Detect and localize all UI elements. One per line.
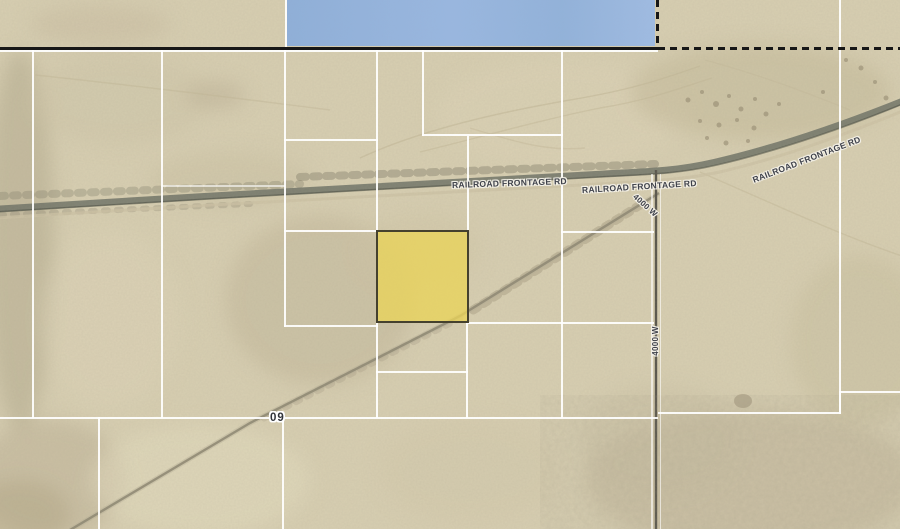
section-boundary-dashed-horizontal <box>658 47 900 50</box>
parcel-boundary-line <box>376 371 468 373</box>
parcel-boundary-line <box>0 50 658 52</box>
parcel-map-canvas[interactable]: RAILROAD FRONTAGE RD RAILROAD FRONTAGE R… <box>0 0 900 529</box>
parcel-boundary-line <box>561 49 563 418</box>
subject-parcel-highlight[interactable] <box>376 230 469 323</box>
parcel-boundary-line <box>561 231 654 233</box>
parcel-boundary-line <box>466 322 468 418</box>
parcel-boundary-line <box>422 134 563 136</box>
section-boundary-dashed-vertical <box>656 0 659 49</box>
road-label-4000-w-lower: 4000 W <box>652 322 660 360</box>
section-boundary-solid <box>0 47 658 50</box>
section-number-label: 09 <box>270 413 285 425</box>
parcel-boundary-line <box>839 391 900 393</box>
parcel-boundary-line <box>422 49 424 136</box>
parcel-boundary-line <box>284 230 378 232</box>
parcel-boundary-line <box>466 322 654 324</box>
terrain-noise-coarse <box>540 395 900 529</box>
parcel-boundary-line <box>839 0 841 414</box>
parcel-boundary-line <box>284 325 378 327</box>
parcel-boundary-line <box>839 391 841 414</box>
parcel-boundary-line <box>161 49 163 418</box>
blue-parcel-overlay <box>287 0 655 46</box>
parcel-boundary-line <box>284 139 378 141</box>
parcel-boundary-line <box>32 49 34 418</box>
parcel-boundary-line <box>658 412 840 414</box>
parcel-boundary-line <box>161 185 285 187</box>
parcel-boundary-line <box>98 417 100 529</box>
parcel-boundary-line <box>282 417 284 529</box>
parcel-boundary-line <box>0 417 658 419</box>
parcel-boundary-line <box>284 49 286 327</box>
